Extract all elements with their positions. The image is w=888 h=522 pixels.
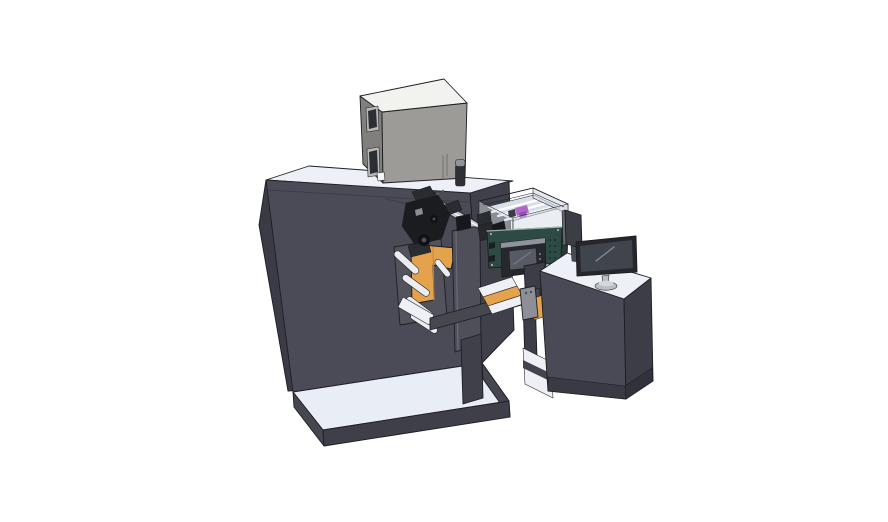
fastener-dot [442, 190, 444, 192]
viewing-window-glass [368, 109, 377, 129]
filter-cylinder-body [456, 165, 466, 186]
roller-boss-center [433, 218, 436, 221]
screw [490, 233, 492, 235]
vent-hole [554, 239, 556, 241]
vent-hole [554, 257, 556, 259]
hmi-button [539, 253, 541, 255]
vent-hole [554, 245, 556, 247]
electronics-cabinet [360, 79, 467, 186]
front-cover-plate [452, 214, 481, 352]
cabinet-front-face [382, 103, 467, 183]
pendant-handle [520, 286, 538, 320]
cad-viewport [0, 0, 888, 522]
support-column [461, 334, 483, 404]
vent-hole [549, 245, 551, 247]
screw [491, 264, 493, 266]
cad-render [0, 0, 888, 522]
pendant-button [525, 292, 527, 294]
pendant-button [530, 291, 532, 293]
roller-boss-center [422, 238, 427, 243]
screw [557, 229, 559, 231]
io-port [489, 242, 495, 249]
vent-hole [549, 251, 551, 253]
cover-plate-cap [456, 214, 471, 231]
filter-cylinder-cap [456, 160, 466, 167]
vent-hole [549, 239, 551, 241]
viewing-window-glass [369, 150, 378, 174]
hmi-button [539, 258, 541, 260]
label-plate [377, 172, 385, 181]
monitor-base-top [599, 281, 614, 287]
vent-hole [554, 251, 556, 253]
io-port [489, 255, 495, 262]
vent-hole [549, 257, 551, 259]
